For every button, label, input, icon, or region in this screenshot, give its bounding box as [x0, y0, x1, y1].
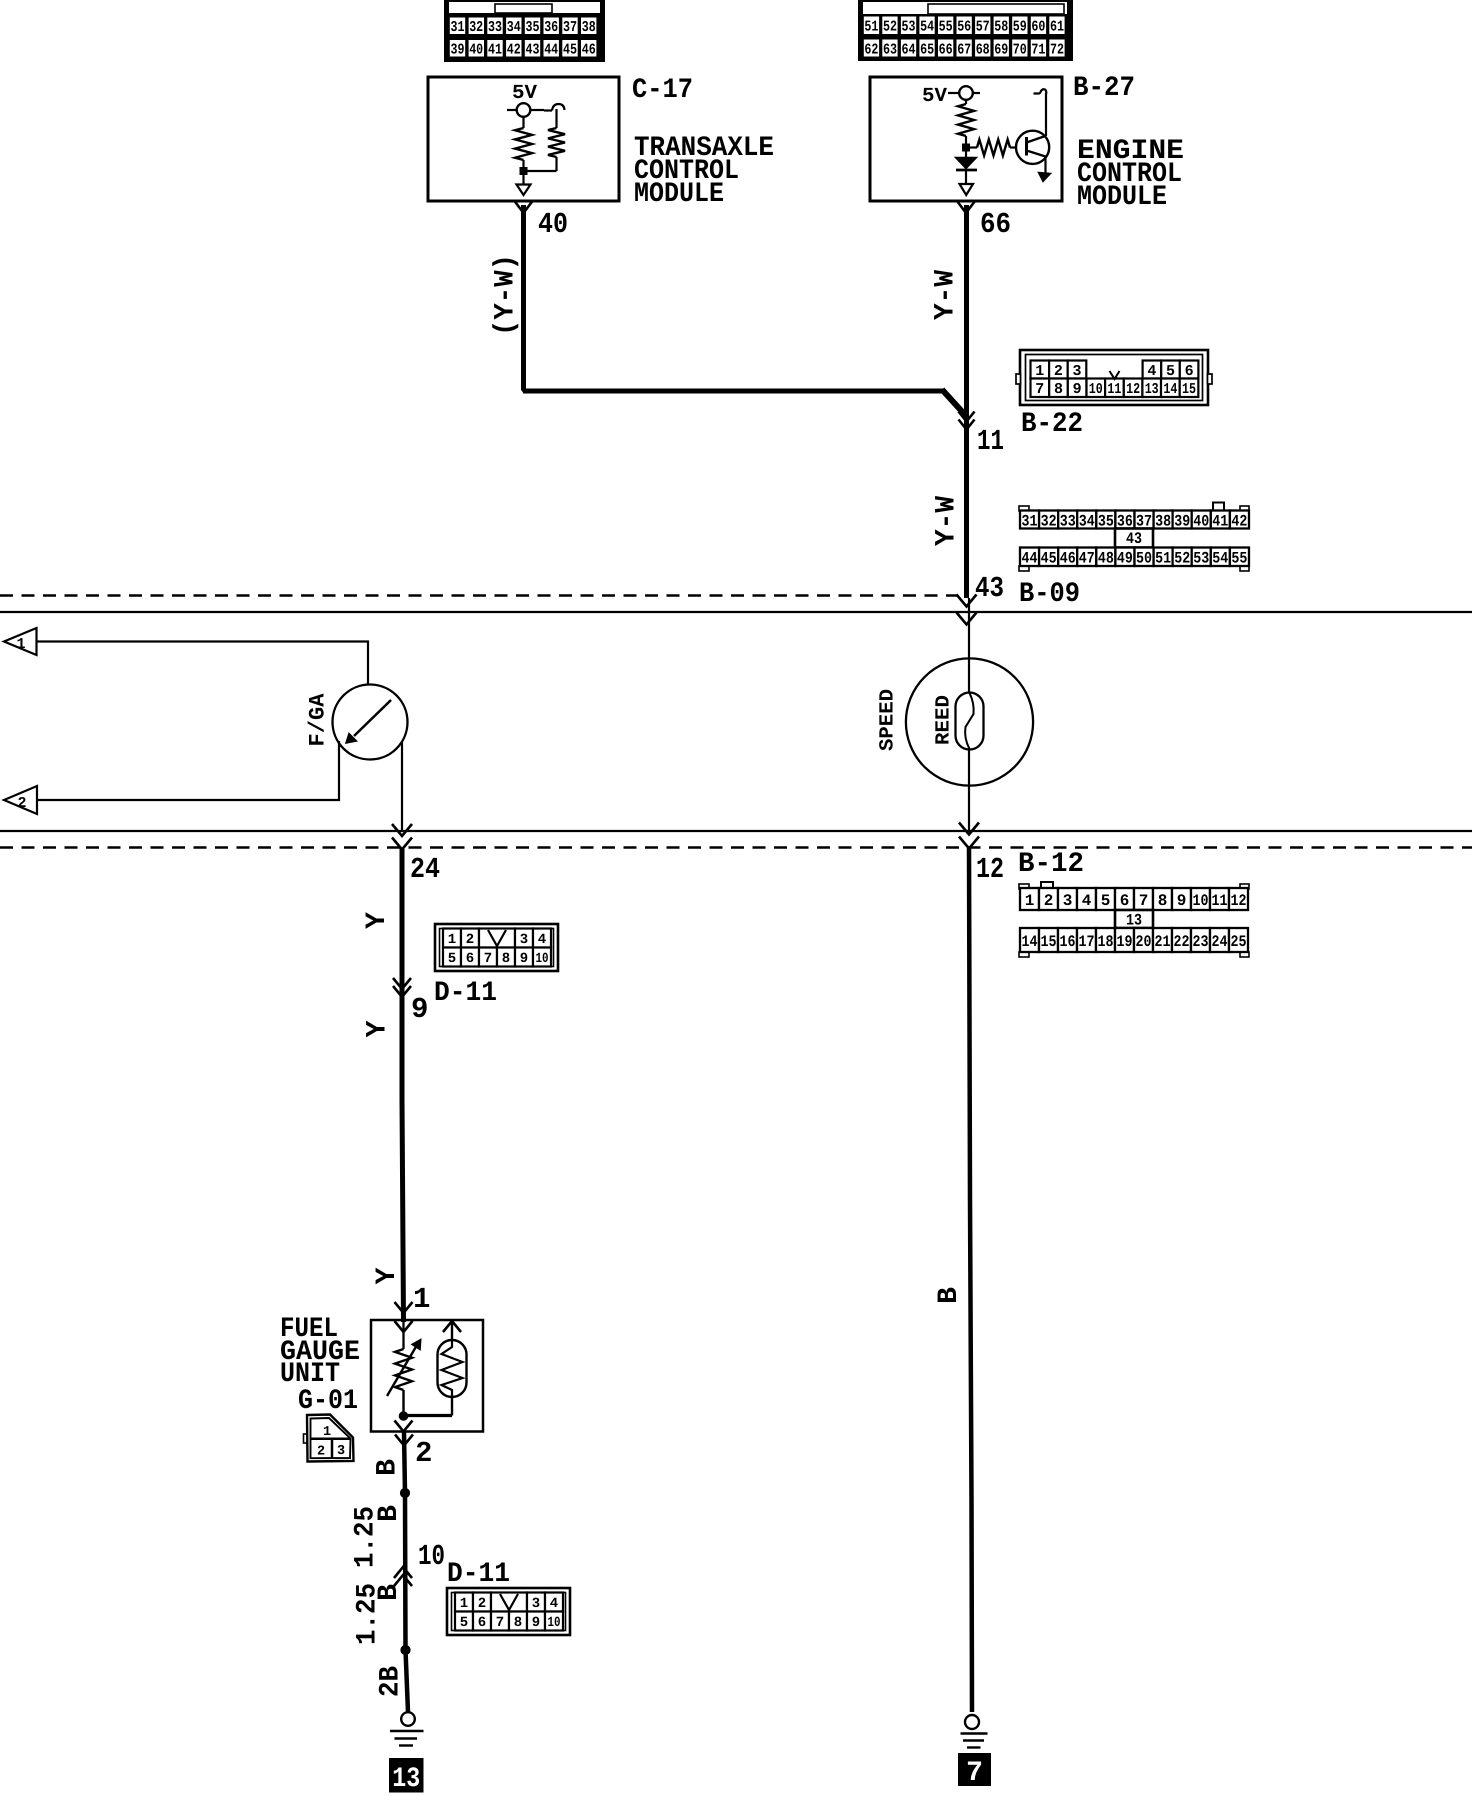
svg-text:9: 9: [1073, 381, 1082, 398]
svg-text:B: B: [373, 1459, 404, 1476]
svg-text:12: 12: [1126, 381, 1140, 398]
svg-text:59: 59: [1013, 19, 1027, 36]
svg-text:34: 34: [1079, 512, 1095, 530]
svg-text:10: 10: [548, 1615, 561, 1631]
svg-text:11: 11: [977, 425, 1004, 458]
svg-text:13: 13: [1126, 912, 1142, 930]
svg-text:33: 33: [488, 19, 502, 36]
svg-text:15: 15: [1182, 381, 1196, 398]
svg-text:2: 2: [415, 1437, 432, 1470]
svg-text:17: 17: [1079, 933, 1095, 951]
svg-text:35: 35: [526, 19, 540, 36]
svg-text:67: 67: [957, 41, 971, 58]
svg-text:42: 42: [507, 42, 521, 59]
svg-text:51: 51: [1155, 550, 1171, 568]
svg-text:11: 11: [1107, 381, 1121, 398]
svg-text:10: 10: [1089, 381, 1103, 398]
svg-text:5: 5: [1166, 363, 1175, 380]
svg-text:7: 7: [496, 1615, 504, 1631]
svg-text:G-01: G-01: [298, 1386, 358, 1417]
svg-text:9: 9: [1177, 892, 1187, 910]
svg-text:57: 57: [976, 19, 990, 36]
svg-text:6: 6: [478, 1615, 486, 1631]
svg-text:45: 45: [1041, 550, 1057, 568]
svg-text:43: 43: [975, 572, 1004, 605]
svg-text:44: 44: [544, 42, 558, 59]
svg-text:25: 25: [1231, 933, 1247, 951]
svg-text:13: 13: [1145, 381, 1159, 398]
svg-text:3: 3: [1072, 363, 1081, 380]
svg-text:4: 4: [538, 932, 546, 948]
svg-text:34: 34: [507, 19, 521, 36]
svg-text:2B: 2B: [376, 1666, 407, 1697]
svg-text:56: 56: [957, 19, 971, 36]
svg-text:42: 42: [1231, 512, 1247, 530]
svg-text:B-27: B-27: [1073, 73, 1135, 104]
svg-text:70: 70: [1013, 41, 1027, 58]
svg-text:Y-W: Y-W: [931, 270, 962, 320]
svg-text:MODULE: MODULE: [1077, 182, 1167, 213]
svg-text:7: 7: [1139, 892, 1149, 910]
svg-text:60: 60: [1031, 19, 1045, 36]
svg-text:44: 44: [1022, 550, 1038, 568]
svg-text:D-11: D-11: [434, 978, 497, 1009]
svg-text:3: 3: [532, 1596, 540, 1612]
svg-text:9: 9: [520, 951, 528, 967]
svg-text:22: 22: [1174, 933, 1190, 951]
svg-text:9: 9: [411, 993, 428, 1026]
svg-text:B-12: B-12: [1018, 849, 1084, 880]
svg-text:7: 7: [1035, 381, 1044, 398]
svg-text:36: 36: [544, 19, 558, 36]
svg-text:5V: 5V: [922, 85, 947, 108]
svg-text:Y: Y: [362, 912, 393, 929]
svg-text:24: 24: [1212, 933, 1228, 951]
svg-text:54: 54: [920, 19, 934, 36]
svg-text:10: 10: [536, 951, 549, 967]
svg-text:37: 37: [563, 19, 577, 36]
svg-text:B: B: [374, 1505, 405, 1522]
svg-text:4: 4: [1082, 892, 1092, 910]
svg-text:66: 66: [939, 41, 953, 58]
svg-text:C-17: C-17: [632, 75, 693, 106]
svg-text:1: 1: [1025, 892, 1035, 910]
svg-text:11: 11: [1212, 892, 1228, 910]
svg-text:46: 46: [1060, 550, 1076, 568]
svg-text:10: 10: [418, 1540, 445, 1573]
svg-text:2: 2: [1054, 363, 1063, 380]
svg-text:63: 63: [883, 41, 897, 58]
svg-text:21: 21: [1155, 933, 1171, 951]
svg-text:12: 12: [976, 853, 1004, 886]
svg-text:Y: Y: [372, 1267, 403, 1284]
svg-text:23: 23: [1193, 933, 1209, 951]
svg-text:4: 4: [1147, 363, 1156, 380]
svg-text:33: 33: [1060, 512, 1076, 530]
svg-text:1: 1: [448, 932, 456, 948]
svg-text:5: 5: [1101, 892, 1111, 910]
svg-text:32: 32: [469, 19, 483, 36]
svg-text:43: 43: [1126, 530, 1142, 548]
svg-text:38: 38: [1155, 512, 1171, 530]
svg-text:69: 69: [994, 41, 1008, 58]
svg-text:50: 50: [1136, 550, 1152, 568]
svg-text:8: 8: [1054, 381, 1063, 398]
svg-text:7: 7: [484, 951, 492, 967]
svg-text:39: 39: [1174, 512, 1190, 530]
svg-text:Y-W: Y-W: [932, 496, 963, 546]
svg-text:65: 65: [920, 41, 934, 58]
svg-text:B-09: B-09: [1019, 579, 1080, 610]
svg-text:40: 40: [538, 208, 568, 241]
svg-text:18: 18: [1098, 933, 1114, 951]
svg-text:55: 55: [939, 19, 953, 36]
svg-text:39: 39: [451, 42, 465, 59]
svg-text:8: 8: [502, 951, 510, 967]
svg-text:10: 10: [1193, 892, 1209, 910]
svg-text:41: 41: [488, 42, 502, 59]
svg-text:5V: 5V: [512, 82, 537, 105]
svg-text:62: 62: [864, 41, 878, 58]
svg-text:7: 7: [966, 1758, 983, 1789]
svg-text:31: 31: [451, 19, 465, 36]
svg-text:35: 35: [1098, 512, 1114, 530]
svg-text:46: 46: [582, 42, 596, 59]
svg-text:B-22: B-22: [1021, 409, 1083, 440]
svg-text:D-11: D-11: [447, 1559, 510, 1590]
svg-text:40: 40: [469, 42, 483, 59]
svg-text:1: 1: [323, 1425, 331, 1440]
svg-text:15: 15: [1041, 933, 1057, 951]
svg-text:55: 55: [1231, 550, 1247, 568]
svg-text:31: 31: [1022, 512, 1038, 530]
svg-text:72: 72: [1050, 41, 1064, 58]
svg-text:53: 53: [1193, 550, 1209, 568]
svg-text:3: 3: [337, 1444, 345, 1459]
svg-text:58: 58: [994, 19, 1008, 36]
svg-text:24: 24: [410, 853, 440, 886]
svg-text:9: 9: [532, 1615, 540, 1631]
svg-text:MODULE: MODULE: [634, 179, 724, 210]
svg-text:1: 1: [460, 1596, 468, 1612]
svg-text:49: 49: [1117, 550, 1133, 568]
svg-text:41: 41: [1212, 512, 1228, 530]
svg-text:(Y-W): (Y-W): [491, 254, 522, 336]
svg-text:45: 45: [563, 42, 577, 59]
svg-text:2: 2: [478, 1596, 486, 1612]
svg-text:53: 53: [902, 19, 916, 36]
svg-text:2: 2: [317, 1445, 325, 1460]
svg-text:38: 38: [582, 19, 596, 36]
svg-text:52: 52: [883, 19, 897, 36]
svg-text:51: 51: [864, 19, 878, 36]
svg-text:14: 14: [1163, 381, 1177, 398]
svg-text:61: 61: [1050, 19, 1064, 36]
svg-text:B: B: [374, 1584, 405, 1601]
svg-text:3: 3: [520, 932, 528, 948]
svg-text:54: 54: [1212, 550, 1228, 568]
svg-text:13: 13: [392, 1764, 420, 1795]
svg-text:68: 68: [976, 41, 990, 58]
svg-text:40: 40: [1193, 512, 1209, 530]
svg-text:2: 2: [466, 932, 474, 948]
svg-text:SPEED: SPEED: [877, 689, 900, 751]
svg-text:6: 6: [1185, 363, 1194, 380]
svg-text:64: 64: [902, 41, 916, 58]
svg-text:1: 1: [16, 636, 25, 653]
svg-text:16: 16: [1060, 933, 1076, 951]
svg-text:66: 66: [980, 208, 1011, 241]
svg-text:Y: Y: [363, 1020, 394, 1037]
svg-text:5: 5: [460, 1615, 468, 1631]
svg-text:8: 8: [514, 1615, 522, 1631]
svg-text:14: 14: [1022, 933, 1038, 951]
svg-text:3: 3: [1063, 892, 1073, 910]
svg-text:B: B: [934, 1287, 965, 1304]
svg-text:20: 20: [1136, 933, 1152, 951]
svg-text:REED: REED: [933, 695, 956, 745]
svg-text:1: 1: [413, 1283, 430, 1316]
svg-text:1: 1: [1035, 363, 1044, 380]
svg-text:12: 12: [1231, 892, 1247, 910]
svg-text:32: 32: [1041, 512, 1057, 530]
svg-text:5: 5: [448, 951, 456, 967]
svg-text:6: 6: [466, 951, 474, 967]
svg-text:6: 6: [1120, 892, 1130, 910]
svg-text:2: 2: [1044, 892, 1054, 910]
svg-text:52: 52: [1174, 550, 1190, 568]
svg-text:48: 48: [1098, 550, 1114, 568]
svg-text:19: 19: [1117, 933, 1133, 951]
svg-text:47: 47: [1079, 550, 1095, 568]
svg-text:71: 71: [1031, 41, 1045, 58]
svg-text:2: 2: [17, 795, 26, 812]
svg-text:8: 8: [1158, 892, 1168, 910]
svg-text:43: 43: [526, 42, 540, 59]
svg-text:F/GA: F/GA: [306, 693, 331, 747]
svg-text:4: 4: [550, 1596, 558, 1612]
